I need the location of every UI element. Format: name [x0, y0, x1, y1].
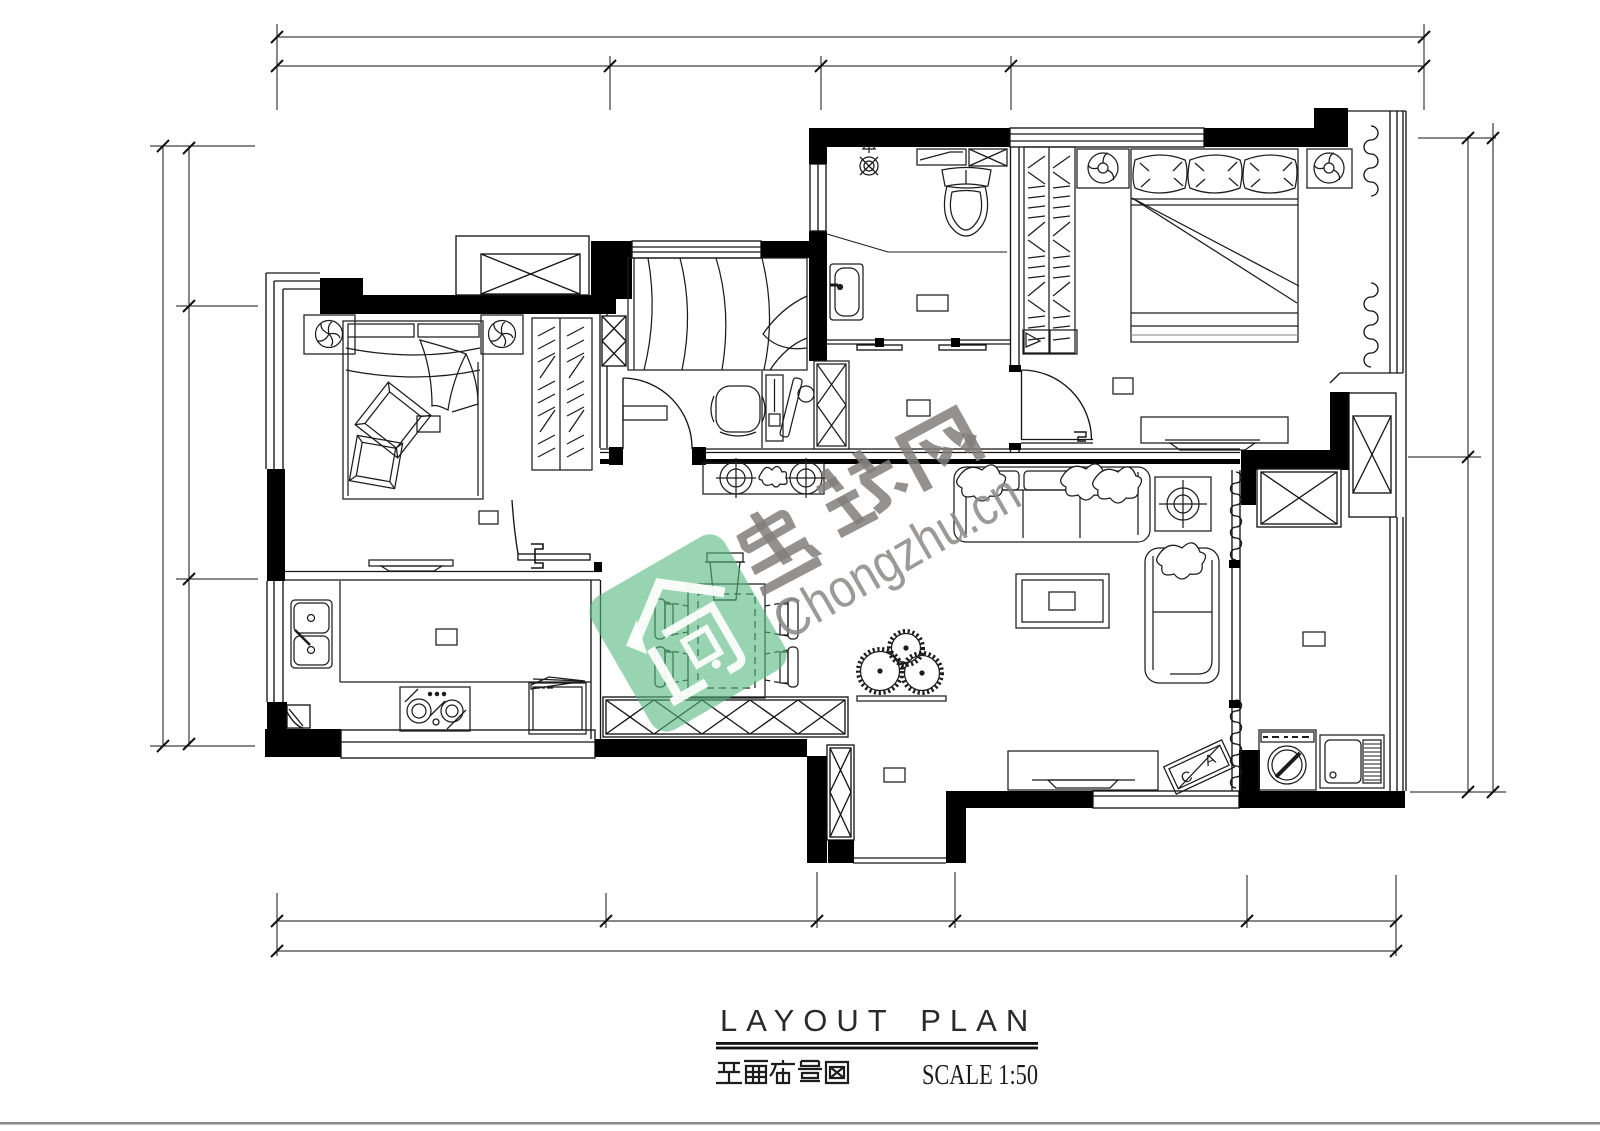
svg-text:LAYOUT PLAN: LAYOUT PLAN	[720, 1003, 1037, 1038]
svg-text:SCALE 1:50: SCALE 1:50	[922, 1059, 1038, 1091]
